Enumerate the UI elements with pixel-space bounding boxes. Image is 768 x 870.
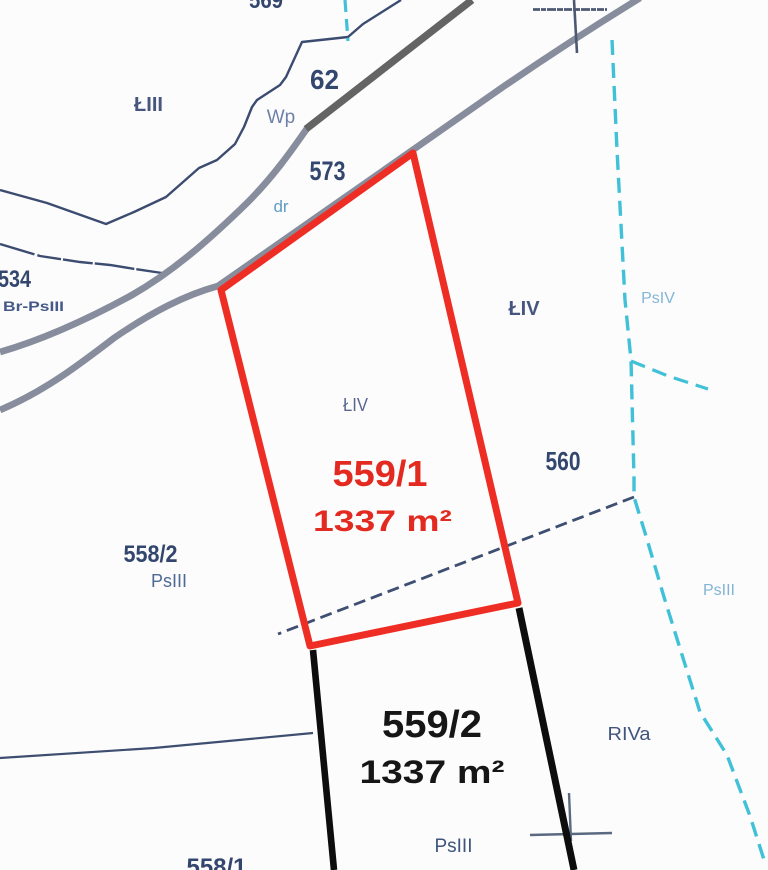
- svg-text:dr: dr: [273, 197, 288, 216]
- svg-text:PsIII: PsIII: [151, 571, 187, 591]
- svg-text:ŁIV: ŁIV: [508, 298, 540, 320]
- svg-text:534: 534: [0, 266, 32, 293]
- svg-text:559/1: 559/1: [333, 453, 428, 494]
- svg-text:1337 m²: 1337 m²: [360, 754, 505, 790]
- svg-text:PsIII: PsIII: [703, 582, 735, 599]
- svg-text:560: 560: [546, 446, 581, 476]
- svg-text:62: 62: [310, 64, 339, 95]
- svg-text:PsIV: PsIV: [641, 290, 675, 307]
- svg-text:1337 m²: 1337 m²: [313, 505, 452, 538]
- svg-text:Br-PsIII: Br-PsIII: [3, 298, 64, 314]
- svg-text:Wp: Wp: [267, 107, 296, 128]
- svg-text:ŁIII: ŁIII: [134, 94, 163, 116]
- svg-text:RIVa: RIVa: [608, 724, 652, 744]
- svg-text:ŁIV: ŁIV: [343, 395, 368, 415]
- svg-text:559/2: 559/2: [382, 704, 482, 746]
- svg-text:569: 569: [249, 0, 283, 13]
- svg-text:PsIII: PsIII: [434, 836, 472, 857]
- svg-text:573: 573: [310, 156, 346, 186]
- svg-text:558/2: 558/2: [124, 541, 178, 568]
- svg-text:558/1: 558/1: [187, 854, 247, 870]
